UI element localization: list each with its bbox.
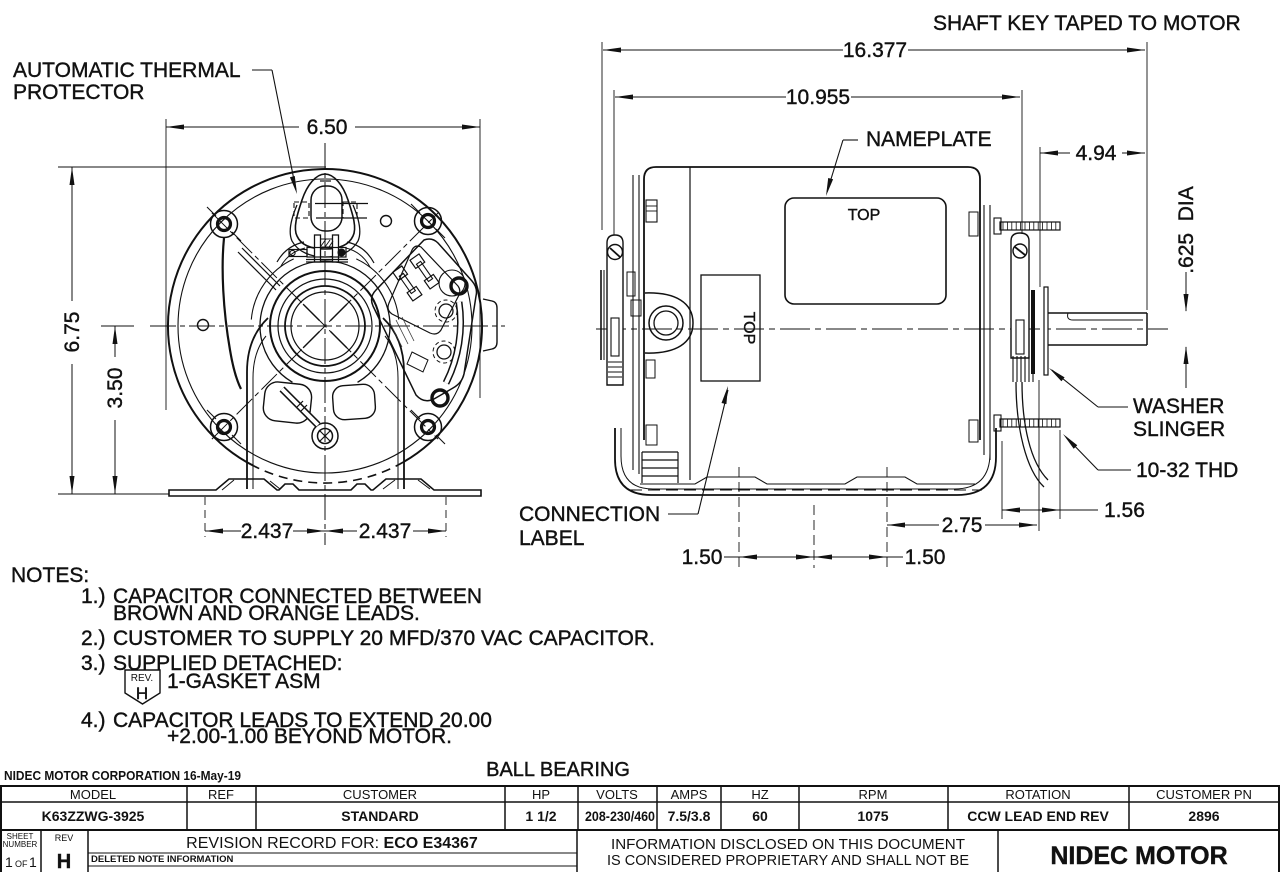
svg-text:LABEL: LABEL: [519, 527, 584, 550]
svg-text:2.437: 2.437: [359, 520, 412, 543]
svg-text:RPM: RPM: [859, 787, 888, 802]
svg-text:1.): 1.): [81, 585, 106, 608]
svg-text:H: H: [57, 851, 71, 872]
svg-text:1.50: 1.50: [682, 546, 723, 569]
svg-text:SLINGER: SLINGER: [1133, 418, 1225, 441]
svg-text:NUMBER: NUMBER: [3, 840, 38, 849]
svg-text:NOTES:: NOTES:: [11, 564, 89, 587]
svg-text:PROTECTOR: PROTECTOR: [13, 81, 144, 104]
svg-text:6.75: 6.75: [61, 312, 84, 353]
svg-text:1: 1: [29, 854, 37, 870]
svg-text:3.50: 3.50: [104, 368, 127, 409]
svg-text:STANDARD: STANDARD: [341, 808, 419, 824]
svg-text:AMPS: AMPS: [671, 787, 708, 802]
svg-text:REV: REV: [55, 833, 74, 843]
svg-text:HP: HP: [532, 787, 550, 802]
svg-text:1.50: 1.50: [905, 546, 946, 569]
svg-text:10-32 THD: 10-32 THD: [1136, 459, 1238, 482]
svg-text:+2.00-1.00 BEYOND MOTOR.: +2.00-1.00 BEYOND MOTOR.: [167, 725, 452, 748]
svg-text:BROWN AND ORANGE LEADS.: BROWN AND ORANGE LEADS.: [113, 602, 420, 625]
svg-text:10.955: 10.955: [786, 86, 850, 109]
svg-text:2.): 2.): [81, 627, 106, 650]
svg-text:AUTOMATIC THERMAL: AUTOMATIC THERMAL: [13, 59, 241, 82]
svg-text:208-230/460: 208-230/460: [585, 809, 655, 824]
svg-text:IS CONSIDERED PROPRIETARY AND: IS CONSIDERED PROPRIETARY AND SHALL NOT …: [607, 853, 969, 869]
svg-text:K63ZZWG-3925: K63ZZWG-3925: [42, 808, 145, 824]
svg-text:7.5/3.8: 7.5/3.8: [668, 808, 711, 824]
svg-text:1-GASKET ASM: 1-GASKET ASM: [167, 670, 321, 693]
svg-text:2896: 2896: [1188, 808, 1219, 824]
svg-text:HZ: HZ: [751, 787, 768, 802]
svg-text:MODEL: MODEL: [70, 787, 116, 802]
svg-text:NIDEC MOTOR: NIDEC MOTOR: [1050, 842, 1227, 870]
svg-text:ROTATION: ROTATION: [1005, 787, 1070, 802]
svg-text:OF: OF: [15, 859, 28, 869]
svg-text:VOLTS: VOLTS: [596, 787, 638, 802]
svg-text:REVISION RECORD FOR: ECO E3436: REVISION RECORD FOR: ECO E34367: [186, 835, 478, 852]
svg-text:DELETED NOTE INFORMATION: DELETED NOTE INFORMATION: [91, 854, 233, 865]
svg-text:1: 1: [5, 854, 13, 870]
svg-text:CCW LEAD END REV: CCW LEAD END REV: [967, 808, 1109, 824]
svg-text:H: H: [136, 684, 148, 703]
svg-text:CONNECTION: CONNECTION: [519, 503, 660, 526]
svg-text:4.94: 4.94: [1076, 142, 1117, 165]
svg-text:1.56: 1.56: [1104, 499, 1145, 522]
svg-text:BALL BEARING: BALL BEARING: [486, 759, 630, 781]
svg-text:60: 60: [752, 808, 768, 824]
svg-text:1075: 1075: [857, 808, 888, 824]
svg-text:REV.: REV.: [131, 673, 153, 684]
svg-text:2.437: 2.437: [241, 520, 294, 543]
svg-text:NIDEC MOTOR CORPORATION 16-May: NIDEC MOTOR CORPORATION 16-May-19: [4, 768, 241, 783]
svg-text:6.50: 6.50: [307, 116, 348, 139]
svg-text:3.): 3.): [81, 652, 106, 675]
svg-text:1 1/2: 1 1/2: [525, 808, 556, 824]
svg-text:.625 DIA: .625 DIA: [1175, 186, 1198, 274]
svg-text:16.377: 16.377: [843, 39, 907, 62]
svg-text:CUSTOMER: CUSTOMER: [343, 787, 417, 802]
svg-text:2.75: 2.75: [942, 514, 983, 537]
svg-text:REF: REF: [208, 787, 234, 802]
svg-text:TOP: TOP: [740, 312, 757, 345]
svg-text:SHAFT KEY TAPED TO MOTOR: SHAFT KEY TAPED TO MOTOR: [933, 12, 1241, 35]
svg-text:4.): 4.): [81, 709, 106, 732]
svg-text:CUSTOMER TO SUPPLY 20 MFD/370: CUSTOMER TO SUPPLY 20 MFD/370 VAC CAPACI…: [113, 627, 655, 650]
svg-text:CUSTOMER PN: CUSTOMER PN: [1156, 787, 1252, 802]
svg-text:INFORMATION DISCLOSED ON THIS: INFORMATION DISCLOSED ON THIS DOCUMENT: [611, 837, 965, 853]
svg-text:NAMEPLATE: NAMEPLATE: [866, 128, 992, 151]
svg-text:TOP: TOP: [848, 207, 881, 224]
svg-text:WASHER: WASHER: [1133, 395, 1224, 418]
